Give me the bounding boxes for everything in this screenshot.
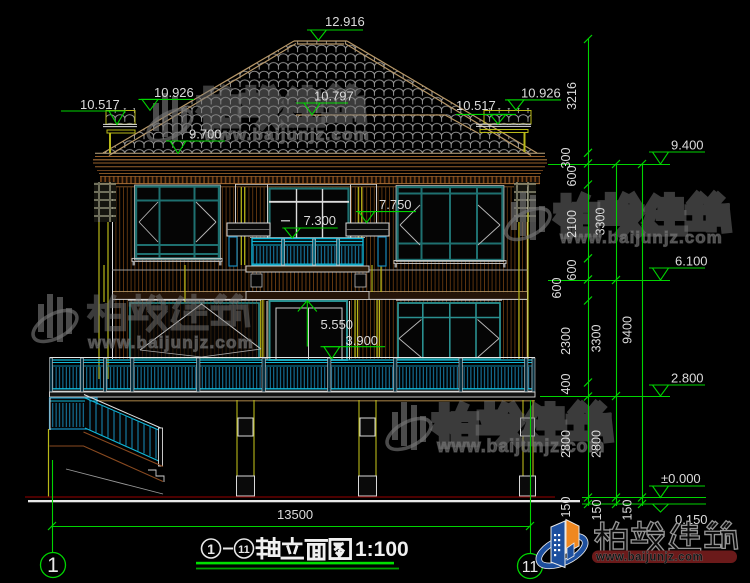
svg-text:150: 150 (559, 497, 573, 518)
svg-text:7.750: 7.750 (379, 197, 412, 212)
svg-text:300: 300 (559, 148, 573, 169)
svg-text:9400: 9400 (621, 316, 635, 344)
svg-text:10.517: 10.517 (456, 98, 496, 113)
svg-text:3216: 3216 (565, 82, 579, 110)
svg-text:600: 600 (550, 278, 564, 299)
svg-text:600: 600 (565, 166, 579, 187)
svg-text:5.550: 5.550 (321, 317, 354, 332)
svg-text:400: 400 (559, 374, 573, 395)
svg-text:150: 150 (590, 500, 604, 521)
svg-text:1:100: 1:100 (355, 538, 409, 561)
svg-text:7.300: 7.300 (304, 213, 337, 228)
svg-text:www.baijunjz.com: www.baijunjz.com (595, 552, 703, 564)
svg-text:6.100: 6.100 (675, 254, 708, 269)
svg-text:2.800: 2.800 (671, 371, 704, 386)
svg-text:2100: 2100 (565, 210, 579, 238)
svg-text:2800: 2800 (559, 430, 573, 458)
svg-text:±0.000: ±0.000 (661, 471, 701, 486)
svg-text:11: 11 (238, 544, 250, 556)
svg-text:3300: 3300 (590, 325, 604, 353)
svg-text:10.926: 10.926 (521, 86, 561, 101)
svg-text:9.400: 9.400 (671, 138, 704, 153)
svg-text:www.baijunjz.com: www.baijunjz.com (203, 125, 370, 144)
svg-text:9.700: 9.700 (189, 127, 222, 142)
svg-text:13500: 13500 (277, 507, 313, 522)
svg-text:150: 150 (621, 500, 635, 521)
svg-text:12.916: 12.916 (325, 14, 365, 29)
svg-text:3.900: 3.900 (346, 333, 379, 348)
svg-text:10.797: 10.797 (314, 89, 354, 104)
svg-text:www.baijunjz.com: www.baijunjz.com (87, 333, 254, 352)
svg-text:1: 1 (47, 554, 59, 577)
svg-text:www.baijunjz.com: www.baijunjz.com (436, 436, 605, 456)
svg-text:2300: 2300 (559, 327, 573, 355)
svg-text:10.926: 10.926 (154, 85, 194, 100)
svg-text:1: 1 (207, 541, 215, 557)
svg-text:10.517: 10.517 (80, 97, 120, 112)
svg-text:www.baijunjz.com: www.baijunjz.com (559, 228, 723, 247)
svg-text:600: 600 (565, 260, 579, 281)
svg-text:3300: 3300 (594, 208, 608, 236)
svg-text:2800: 2800 (590, 430, 604, 458)
